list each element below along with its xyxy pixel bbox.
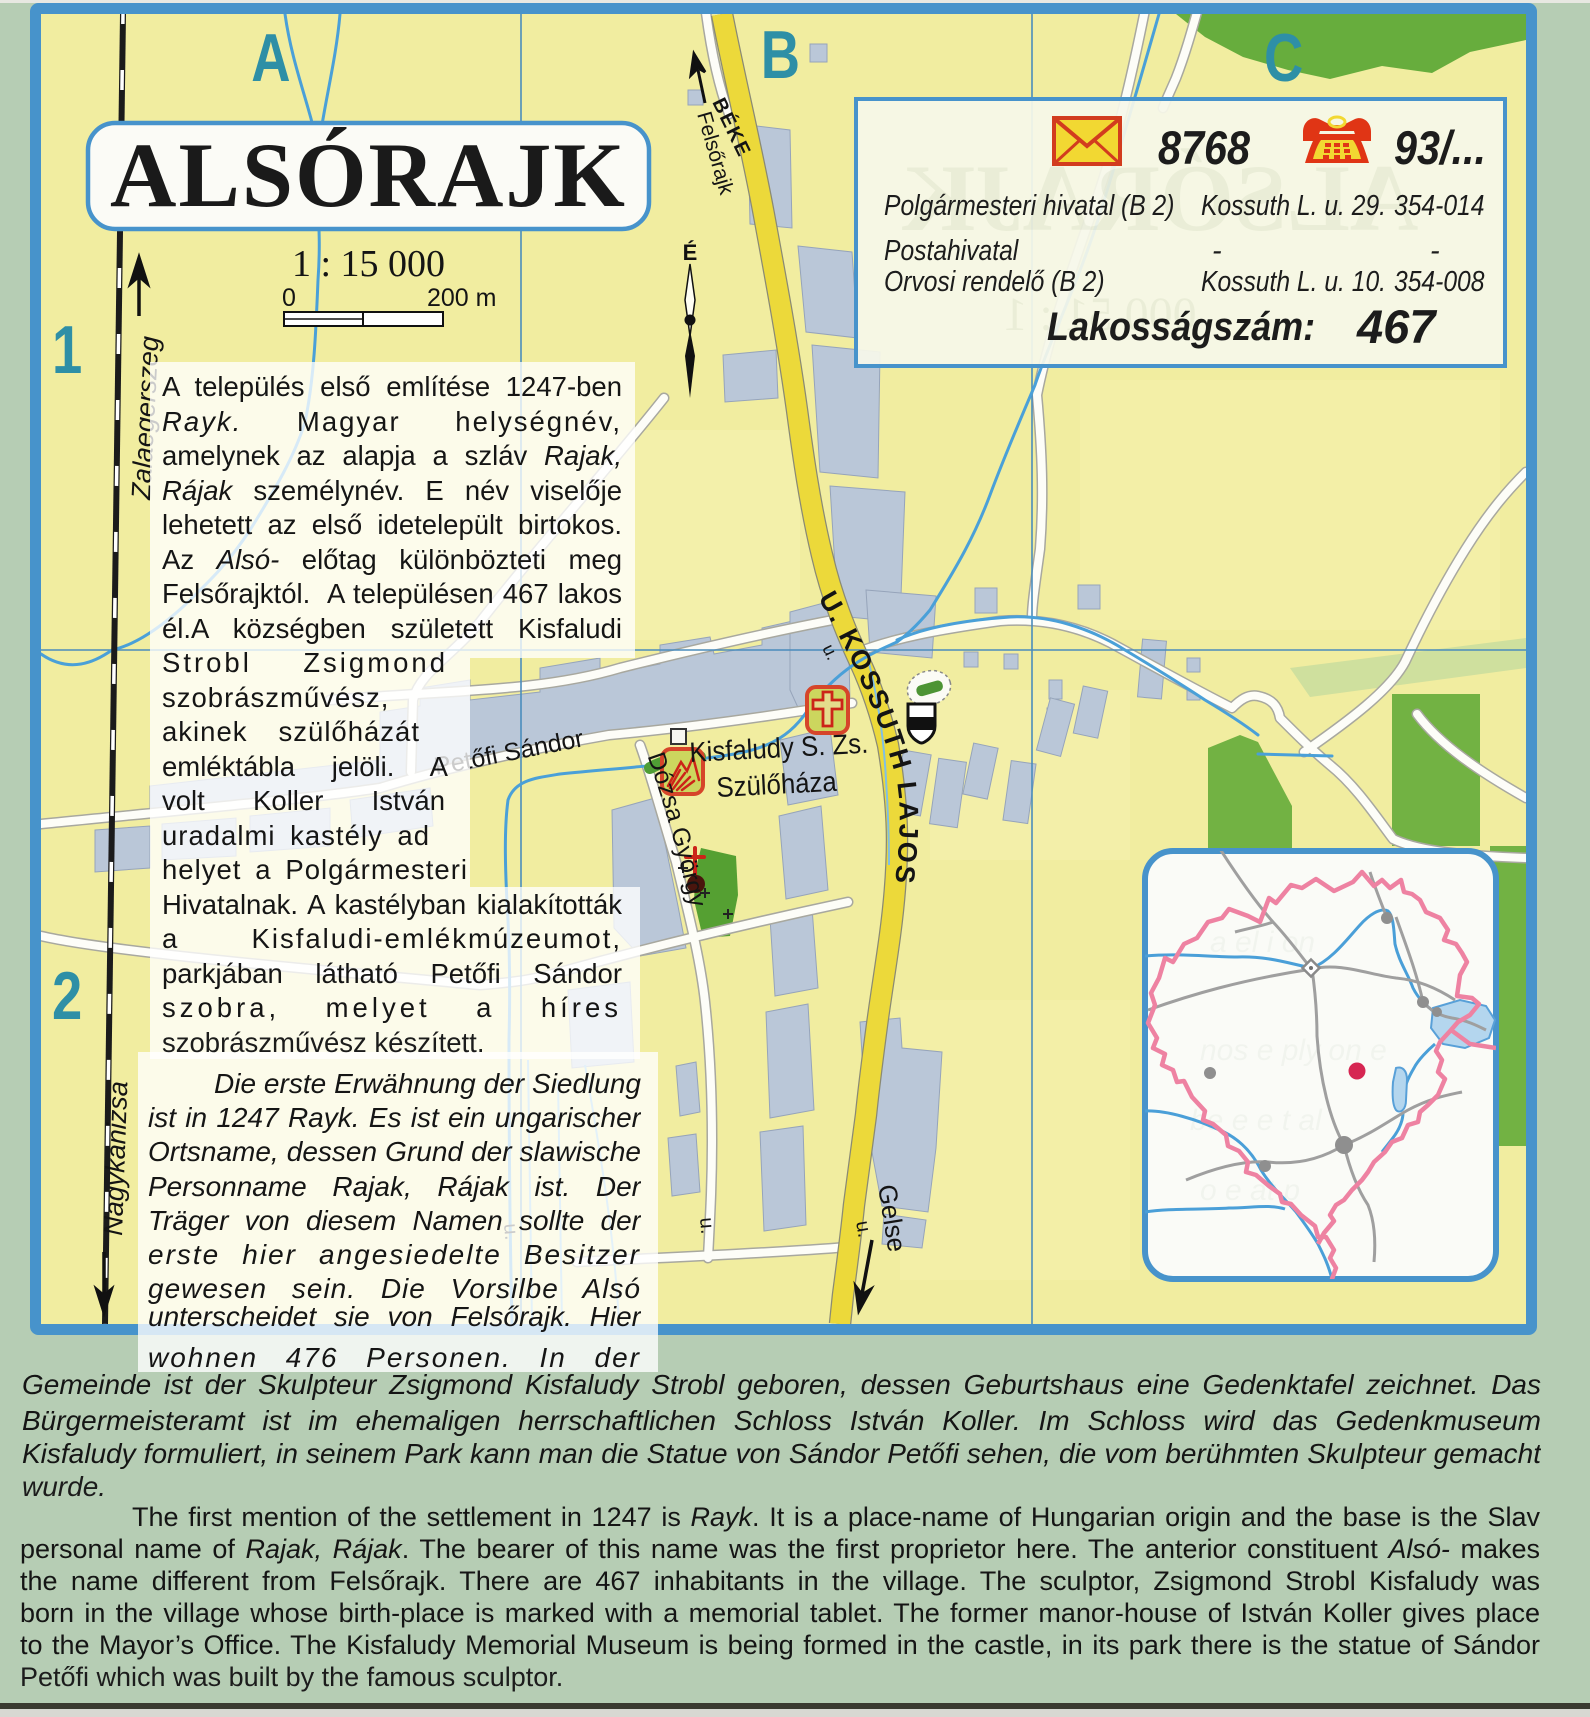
svg-text:nos e ply on e: nos e ply on e [1200, 1034, 1387, 1067]
svg-text:Szülőháza: Szülőháza [716, 766, 838, 803]
svg-text:A: A [251, 20, 290, 96]
svg-text:u.: u. [695, 1217, 718, 1236]
svg-text:C: C [1264, 20, 1303, 96]
svg-text:0: 0 [282, 284, 296, 312]
svg-text:1: 1 [52, 312, 82, 388]
svg-text:Nagykanizsa: Nagykanizsa [98, 1081, 133, 1237]
svg-text:1 : 15 000: 1 : 15 000 [292, 243, 445, 285]
svg-text:200 m: 200 m [427, 284, 496, 312]
svg-text:B: B [761, 17, 800, 93]
svg-text:2: 2 [52, 958, 82, 1034]
svg-text:É: É [683, 240, 698, 265]
